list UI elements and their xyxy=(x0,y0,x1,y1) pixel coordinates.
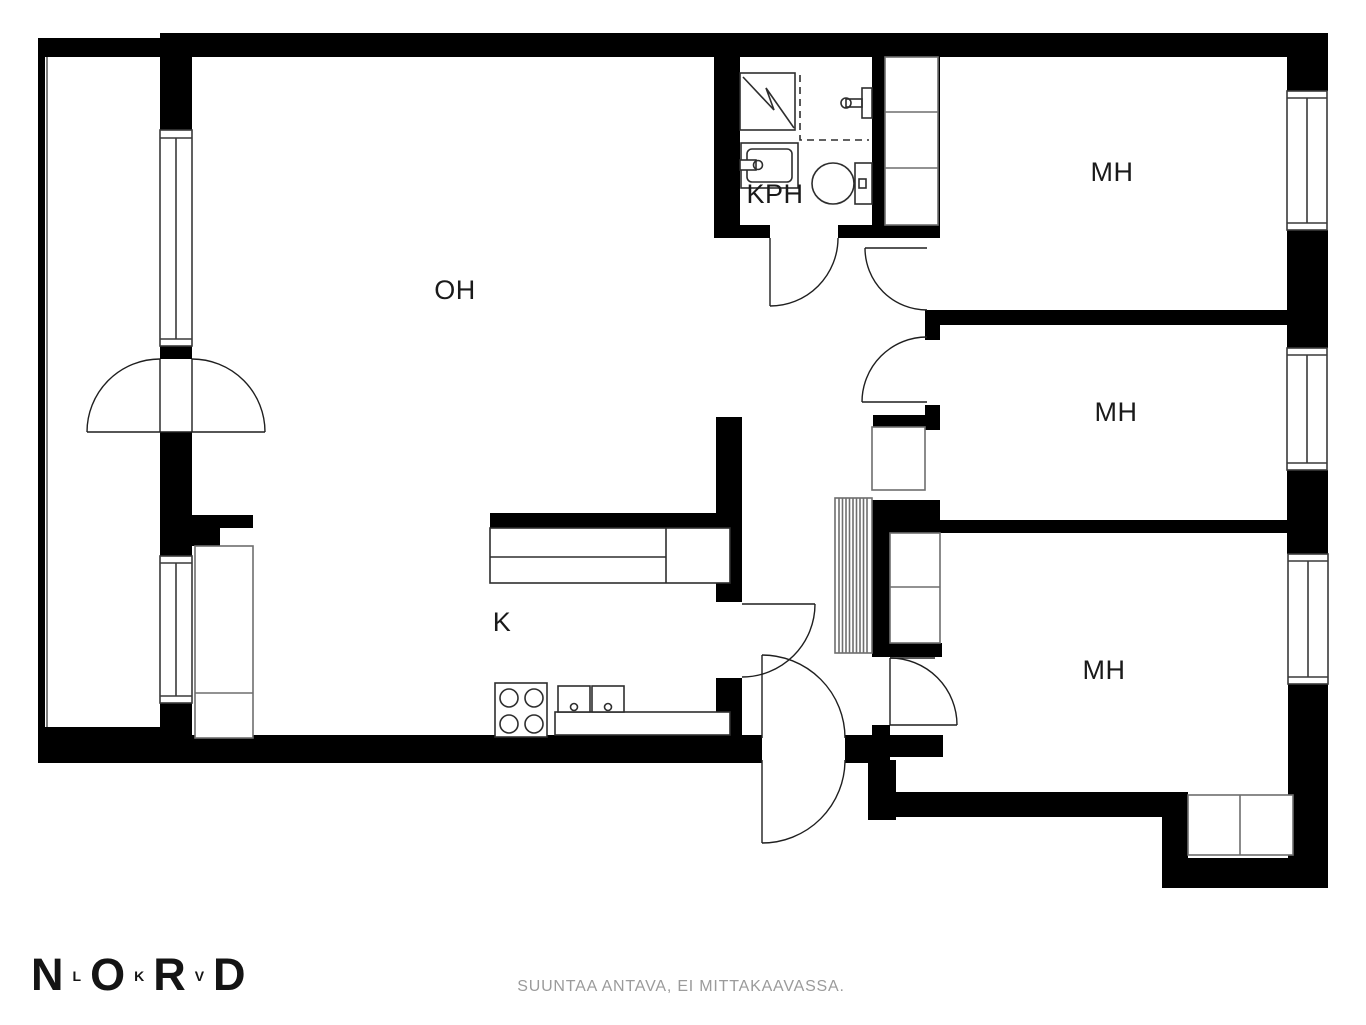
wall-segment xyxy=(160,528,220,546)
wall-segment xyxy=(160,346,192,359)
wall-segment xyxy=(38,38,160,57)
entry-door-inner-swing xyxy=(762,655,845,738)
floorplan-drawing: OH K KPH MH MH MH xyxy=(0,0,1366,1025)
sliding-door-wardrobe xyxy=(835,498,872,653)
wall-segment xyxy=(845,735,872,763)
wall-segment xyxy=(872,643,942,657)
wall-segment xyxy=(925,225,940,238)
wardrobe-hallway xyxy=(872,427,925,490)
balcony-rail xyxy=(38,38,45,757)
wall-segment xyxy=(1162,817,1188,862)
wardrobe-bedroom-bottom-nw xyxy=(890,533,940,643)
wall-segment xyxy=(714,57,740,238)
wall-segment xyxy=(890,735,943,757)
wardrobe-livingroom xyxy=(195,546,253,738)
window xyxy=(160,556,192,703)
bedroom-top-door-swing xyxy=(865,248,927,310)
kitchen-fixtures xyxy=(490,528,730,737)
wall-segment xyxy=(160,33,1328,57)
room-label-bedroom-mid: MH xyxy=(1095,397,1138,427)
room-label-kitchen: K xyxy=(493,607,512,637)
room-label-oh: OH xyxy=(434,275,476,305)
room-labels: OH K KPH MH MH MH xyxy=(434,157,1137,685)
window xyxy=(1288,554,1328,684)
wall-segment xyxy=(160,33,192,130)
wall-segment xyxy=(160,515,253,528)
wardrobe-bedroom-bottom-se xyxy=(1188,795,1293,855)
wall-segment xyxy=(872,725,890,763)
logo-letter: O xyxy=(90,952,125,997)
wall-segment xyxy=(925,405,940,430)
wardrobe-bathroom-column xyxy=(885,57,938,225)
logo-letter: V xyxy=(195,969,204,983)
logo-letter: D xyxy=(213,952,246,997)
wall-segment xyxy=(1288,684,1328,888)
floorplan-page: { "plan": { "type": "apartment-floorplan… xyxy=(0,0,1366,1025)
window xyxy=(1287,91,1327,230)
logo-letter: K xyxy=(134,969,144,983)
wall-segment xyxy=(490,513,742,528)
wall-segment xyxy=(872,500,940,533)
logo-letter: L xyxy=(73,969,82,983)
wall-segment xyxy=(872,533,890,657)
wall-segment xyxy=(925,325,940,340)
wall-segment xyxy=(868,792,1188,817)
stove-icon xyxy=(495,683,547,737)
shower-head-icon xyxy=(841,88,872,118)
wall-segment xyxy=(940,520,1293,533)
window xyxy=(1287,348,1327,470)
nord-lkv-logo: N L O K R V D xyxy=(31,952,246,997)
countertop-lower xyxy=(555,712,730,735)
balcony-door-swing xyxy=(87,359,265,432)
bedroom-middle-door-swing xyxy=(862,337,927,402)
floor-drain-icon xyxy=(743,77,794,128)
wall-segment xyxy=(872,57,885,225)
logo-letter: R xyxy=(153,952,186,997)
wall-segment xyxy=(1162,858,1328,888)
wall-segment xyxy=(1287,470,1328,554)
entry-door-outer-swing xyxy=(762,760,845,843)
wall-segment xyxy=(925,310,1287,325)
wall-segment xyxy=(868,760,896,820)
window xyxy=(160,130,192,346)
toilet-icon xyxy=(812,163,872,204)
wall-segment xyxy=(1287,230,1328,348)
room-label-bedroom-top: MH xyxy=(1091,157,1134,187)
wall-segment xyxy=(160,432,192,516)
bedroom-bottom-door-swing xyxy=(890,658,957,725)
room-label-bedroom-bot: MH xyxy=(1083,655,1126,685)
wall-segment xyxy=(160,546,192,556)
room-label-bathroom: KPH xyxy=(746,179,803,209)
wall-segment xyxy=(873,415,925,427)
wall-segment xyxy=(38,727,160,757)
windows xyxy=(160,91,1328,703)
walls xyxy=(38,33,1328,888)
kitchen-sink-icon xyxy=(558,686,624,712)
disclaimer-text: SUUNTAA ANTAVA, EI MITTAKAAVASSA. xyxy=(517,978,845,996)
logo-letter: N xyxy=(31,952,64,997)
wall-segment xyxy=(714,225,770,238)
wall-segment xyxy=(1287,33,1328,91)
wall-segment xyxy=(838,225,940,238)
countertop-upper xyxy=(490,528,730,583)
balcony xyxy=(38,38,47,757)
wall-segment xyxy=(160,703,192,738)
bathroom-door-swing xyxy=(770,238,838,306)
